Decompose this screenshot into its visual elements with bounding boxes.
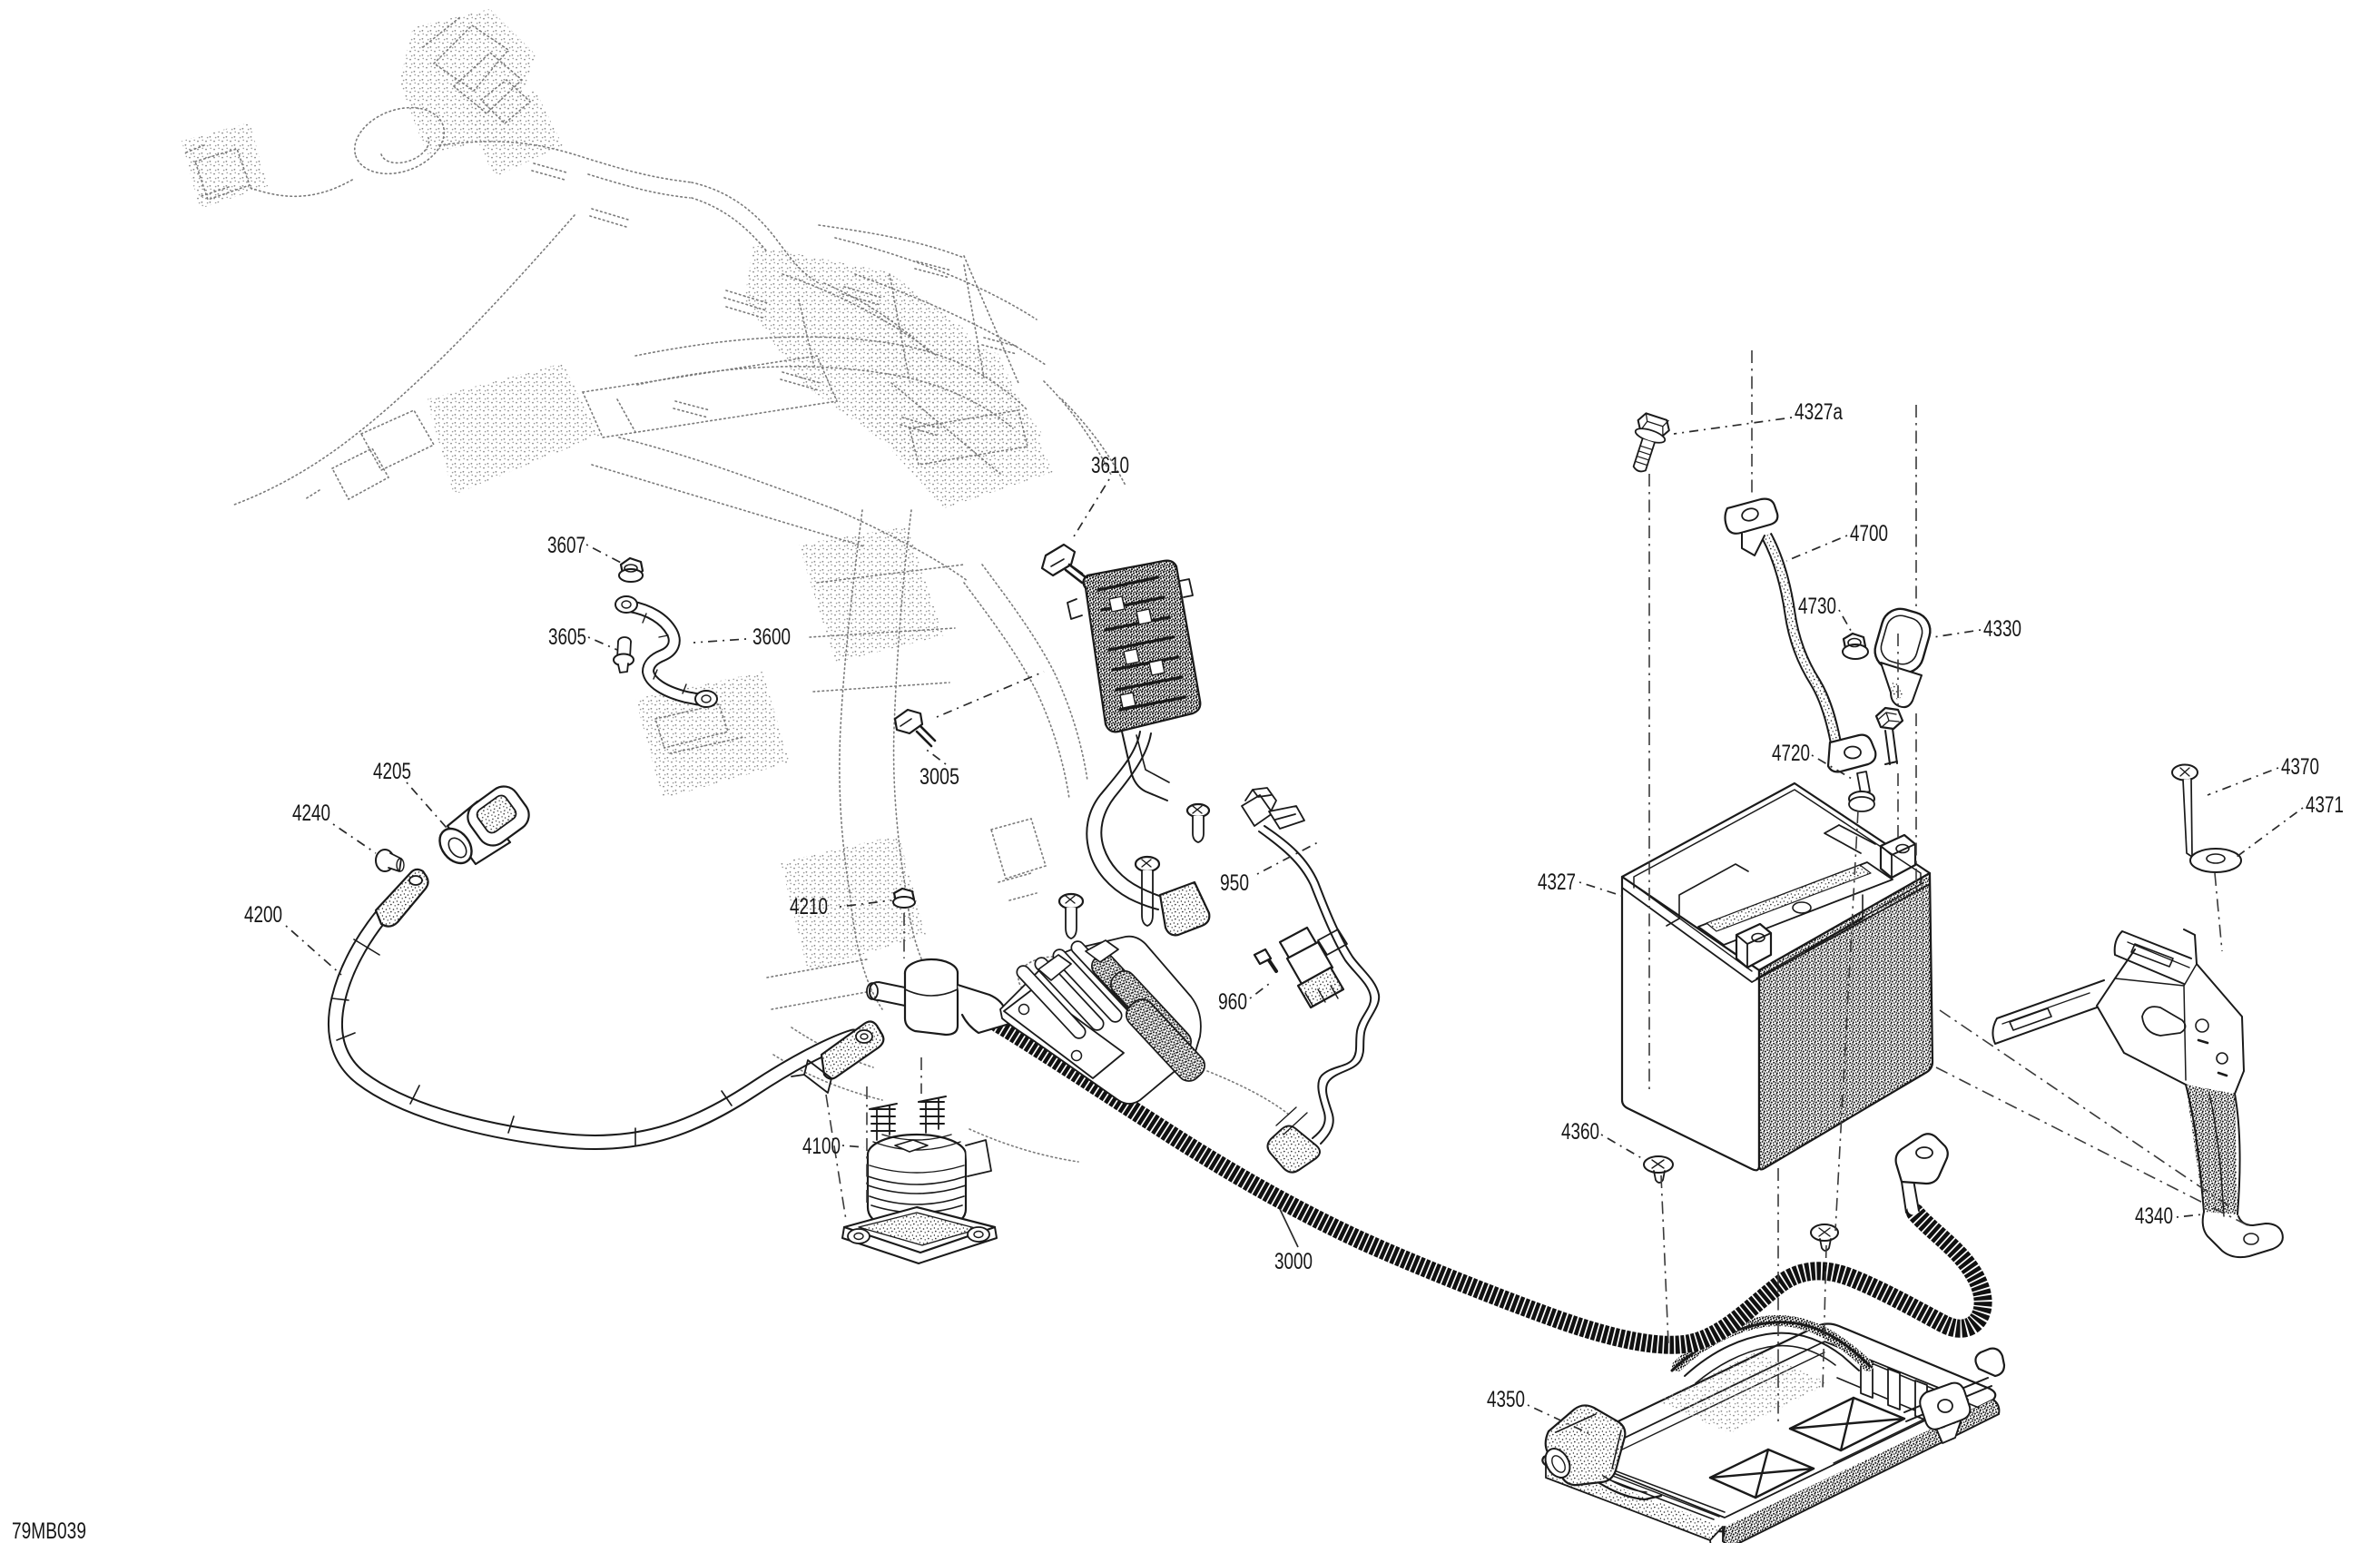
svg-text:4360: 4360 [1561,1119,1599,1145]
svg-text:3000: 3000 [1274,1249,1313,1274]
svg-text:4730: 4730 [1798,594,1836,619]
svg-text:3005: 3005 [920,764,959,790]
svg-text:3605: 3605 [548,624,586,650]
svg-text:950: 950 [1220,870,1249,896]
svg-text:4240: 4240 [292,801,330,826]
svg-text:3610: 3610 [1091,453,1129,478]
svg-text:4327: 4327 [1538,870,1576,895]
svg-text:960: 960 [1218,989,1247,1015]
svg-text:4330: 4330 [1983,616,2021,642]
svg-text:4370: 4370 [2281,754,2319,780]
svg-text:4700: 4700 [1850,521,1888,546]
svg-text:4327a: 4327a [1795,399,1843,425]
svg-text:4350: 4350 [1487,1387,1525,1412]
svg-text:4371: 4371 [2306,792,2344,818]
svg-text:3600: 3600 [752,624,791,650]
svg-text:4210: 4210 [790,894,828,919]
svg-text:4340: 4340 [2135,1204,2173,1229]
svg-text:4205: 4205 [373,759,411,784]
svg-text:79MB039: 79MB039 [12,1518,86,1543]
svg-text:4200: 4200 [244,902,282,928]
svg-text:4100: 4100 [802,1134,841,1159]
svg-text:3607: 3607 [547,533,585,558]
svg-text:4720: 4720 [1772,741,1810,766]
